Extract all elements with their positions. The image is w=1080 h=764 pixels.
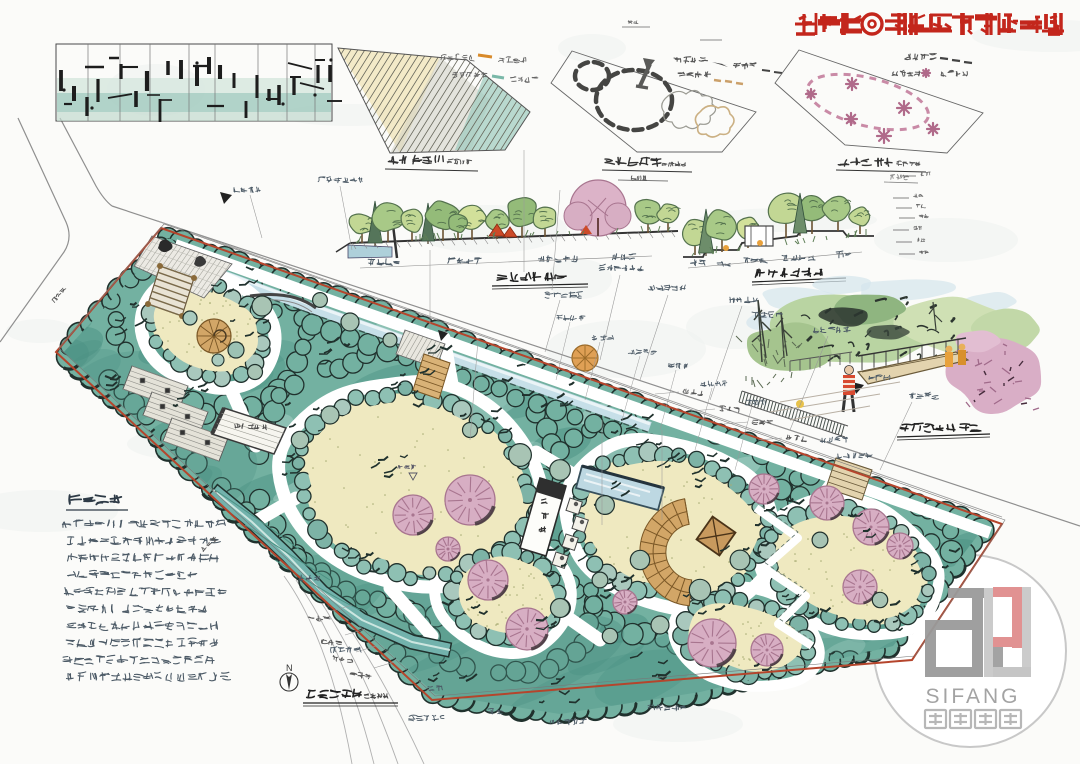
svg-text:SIFANG: SIFANG (925, 685, 1020, 708)
svg-text:N: N (286, 663, 293, 673)
